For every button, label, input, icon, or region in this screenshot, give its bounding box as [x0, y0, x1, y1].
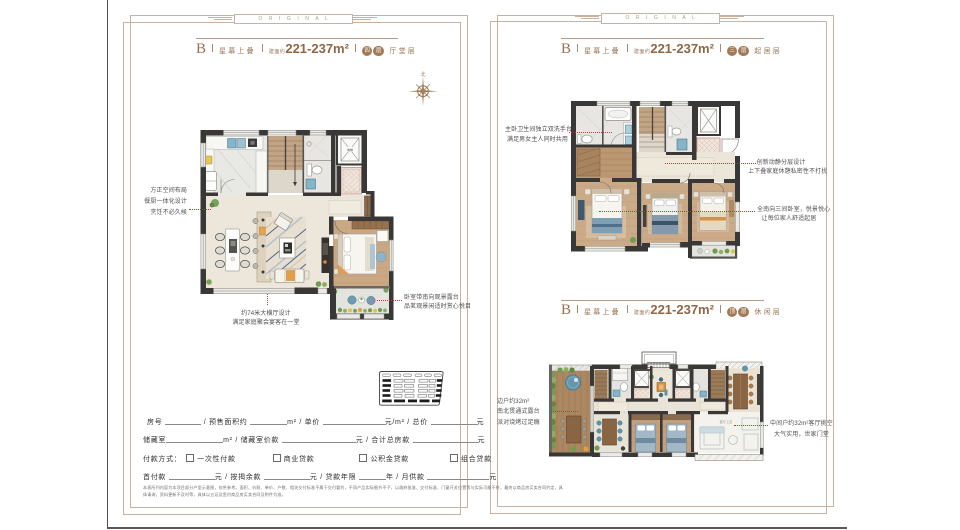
svg-text:电梯: 电梯 — [347, 147, 353, 152]
svg-text:客厅上空: 客厅上空 — [720, 419, 733, 424]
